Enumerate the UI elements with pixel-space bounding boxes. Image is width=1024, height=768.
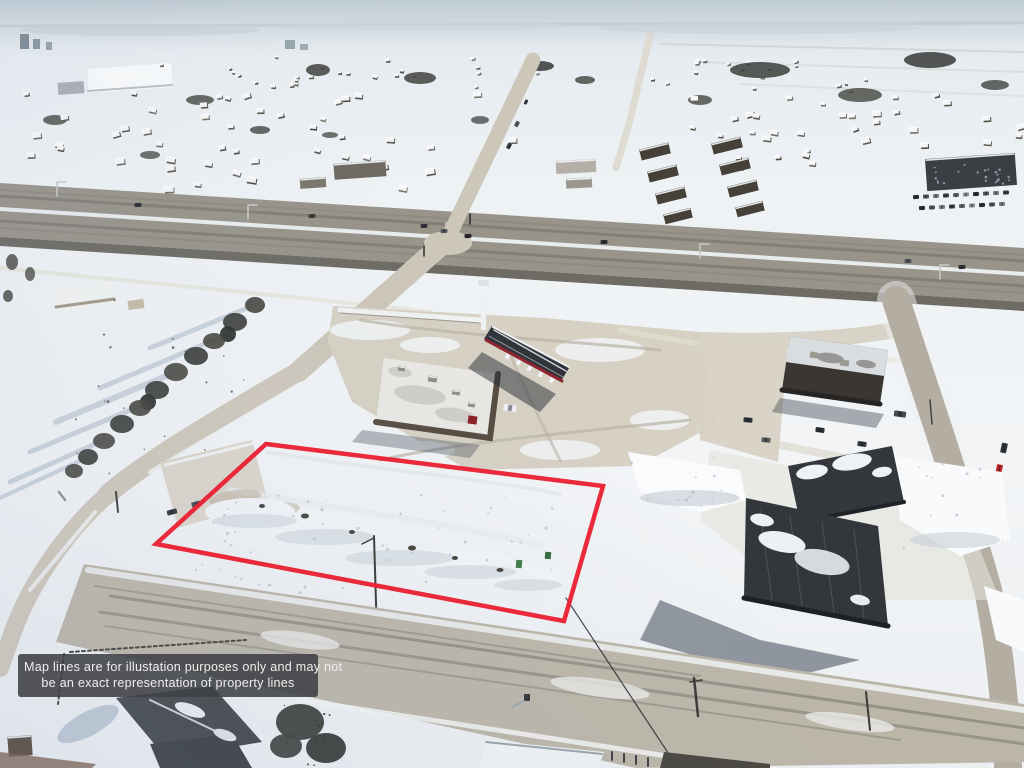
aerial-photo-canvas (0, 0, 1024, 768)
disclaimer-line-1: Map lines are for illustation purposes o… (24, 659, 312, 675)
aerial-photo: Map lines are for illustation purposes o… (0, 0, 1024, 768)
cool-shadow-tint (0, 0, 1024, 768)
map-lines-disclaimer: Map lines are for illustation purposes o… (18, 654, 318, 697)
disclaimer-line-2: be an exact representation of property l… (24, 675, 312, 691)
